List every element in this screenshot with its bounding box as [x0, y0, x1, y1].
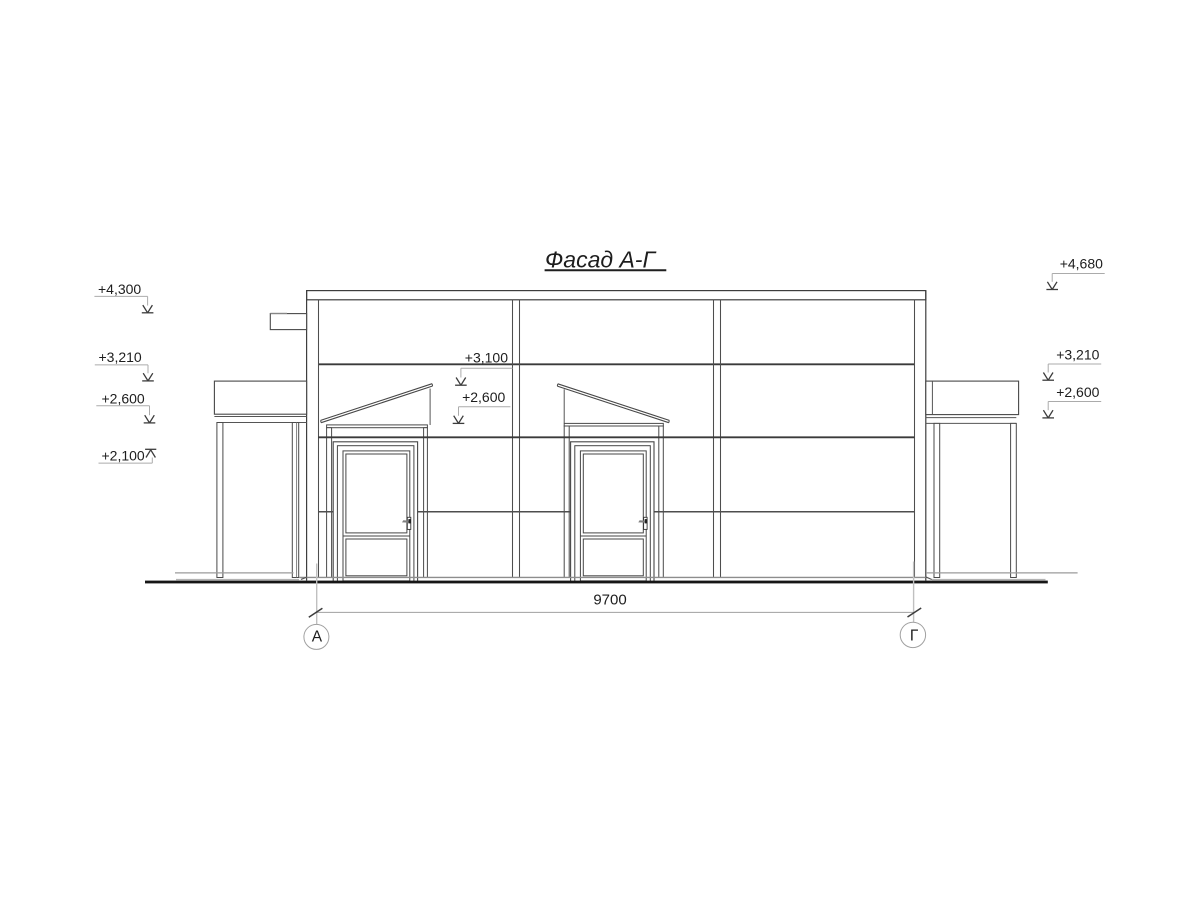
svg-text:+3,210: +3,210	[99, 349, 142, 365]
svg-text:+2,600: +2,600	[102, 390, 145, 406]
svg-text:9700: 9700	[593, 591, 626, 608]
svg-text:+4,680: +4,680	[1060, 256, 1103, 272]
svg-text:+2,600: +2,600	[1056, 384, 1099, 400]
svg-text:Фасад А-Г: Фасад А-Г	[545, 247, 656, 273]
svg-text:Г: Г	[910, 627, 919, 644]
svg-text:+4,300: +4,300	[98, 281, 141, 297]
svg-text:+2,100: +2,100	[102, 447, 145, 463]
svg-text:+3,100: +3,100	[465, 350, 508, 366]
svg-text:+3,210: +3,210	[1056, 346, 1099, 362]
svg-text:А: А	[312, 628, 323, 645]
svg-text:+2,600: +2,600	[462, 389, 505, 405]
